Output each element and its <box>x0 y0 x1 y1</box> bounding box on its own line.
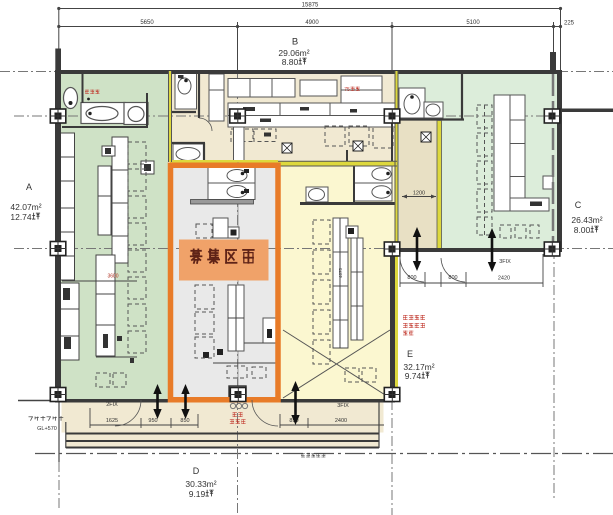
svg-text:E: E <box>407 349 413 359</box>
svg-text:12.74: 12.74 <box>10 212 32 222</box>
svg-text:4900: 4900 <box>305 20 319 26</box>
svg-text:5650: 5650 <box>140 20 154 26</box>
svg-text:GL+570: GL+570 <box>37 426 57 432</box>
svg-text:950: 950 <box>148 418 157 424</box>
svg-text:8.00: 8.00 <box>574 225 591 235</box>
svg-text:3FIX: 3FIX <box>499 259 511 265</box>
svg-text:26.43m²: 26.43m² <box>571 215 602 225</box>
svg-text:3FIX: 3FIX <box>337 403 349 409</box>
svg-text:1625: 1625 <box>106 418 118 424</box>
svg-text:3600: 3600 <box>107 274 118 280</box>
svg-text:15875: 15875 <box>302 3 319 9</box>
svg-text:2FIX: 2FIX <box>106 402 118 408</box>
svg-text:225: 225 <box>564 21 575 27</box>
svg-text:75: 75 <box>344 87 350 93</box>
svg-text:C: C <box>575 200 582 210</box>
svg-text:850: 850 <box>180 418 189 424</box>
svg-text:30.33m²: 30.33m² <box>185 479 216 489</box>
svg-text:D: D <box>193 466 200 476</box>
svg-text:5100: 5100 <box>466 20 480 26</box>
svg-text:9.74: 9.74 <box>405 371 422 381</box>
svg-text:1200: 1200 <box>413 191 425 197</box>
svg-text:B: B <box>292 37 298 48</box>
svg-text:42.07m²: 42.07m² <box>10 202 41 212</box>
svg-text:8.80: 8.80 <box>282 57 299 67</box>
svg-text:A: A <box>26 182 32 192</box>
svg-text:2420: 2420 <box>498 276 510 282</box>
svg-text:4675: 4675 <box>338 267 343 278</box>
svg-text:9.19: 9.19 <box>189 489 206 499</box>
svg-text:2400: 2400 <box>335 418 347 424</box>
